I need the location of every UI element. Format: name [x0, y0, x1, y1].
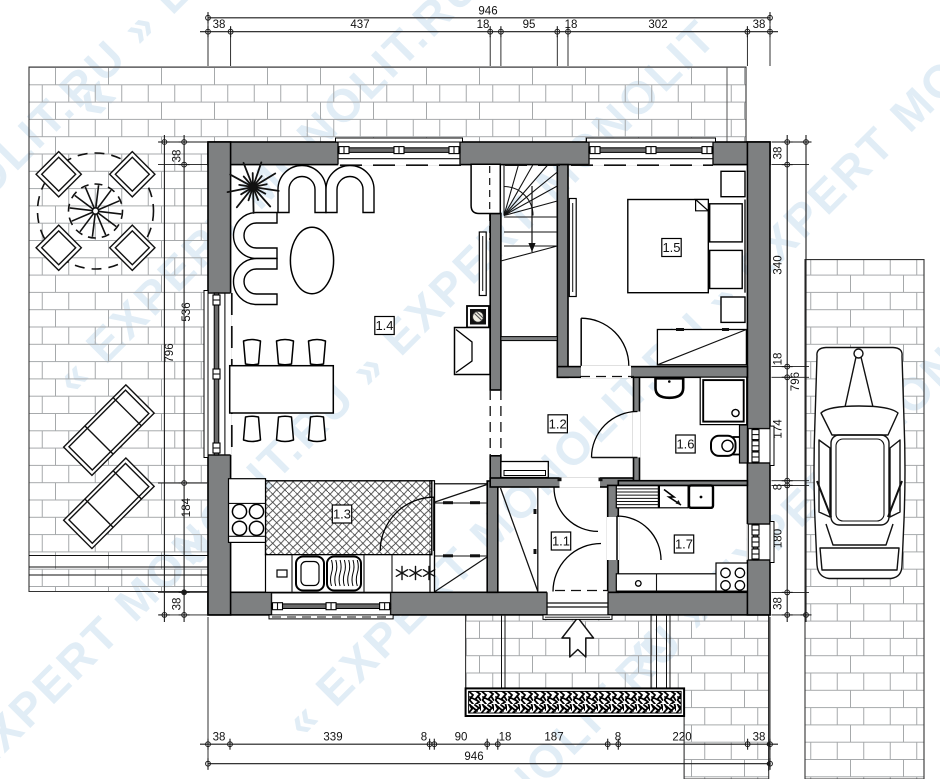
svg-text:38: 38 — [753, 732, 766, 744]
svg-text:38: 38 — [753, 19, 766, 31]
svg-text:18: 18 — [565, 19, 578, 31]
svg-text:796: 796 — [164, 343, 176, 362]
svg-text:1.1: 1.1 — [552, 534, 570, 549]
svg-text:536: 536 — [181, 302, 193, 321]
svg-text:1.6: 1.6 — [676, 437, 694, 452]
svg-text:1.5: 1.5 — [662, 240, 680, 255]
svg-text:38: 38 — [213, 732, 226, 744]
svg-text:946: 946 — [464, 751, 483, 763]
svg-text:38: 38 — [213, 19, 226, 31]
svg-text:946: 946 — [478, 6, 497, 18]
svg-text:184: 184 — [181, 497, 193, 517]
svg-text:18: 18 — [773, 353, 785, 366]
svg-text:302: 302 — [648, 19, 667, 31]
svg-text:8: 8 — [773, 484, 785, 490]
svg-text:90: 90 — [455, 732, 468, 744]
svg-text:1.7: 1.7 — [675, 537, 693, 552]
svg-text:340: 340 — [773, 255, 785, 274]
svg-text:1.4: 1.4 — [375, 318, 393, 333]
svg-text:38: 38 — [773, 597, 785, 610]
svg-text:8: 8 — [615, 732, 621, 744]
svg-text:18: 18 — [477, 19, 490, 31]
svg-text:95: 95 — [523, 19, 536, 31]
svg-text:220: 220 — [672, 732, 691, 744]
svg-text:437: 437 — [350, 19, 369, 31]
svg-text:38: 38 — [773, 147, 785, 160]
svg-text:796: 796 — [790, 372, 802, 391]
svg-text:187: 187 — [544, 732, 563, 744]
svg-text:1.2: 1.2 — [549, 416, 567, 431]
svg-text:339: 339 — [323, 732, 342, 744]
svg-text:8: 8 — [421, 732, 427, 744]
svg-text:38: 38 — [172, 598, 184, 611]
svg-text:38: 38 — [172, 150, 184, 163]
svg-text:1.3: 1.3 — [333, 507, 351, 522]
svg-text:18: 18 — [499, 732, 512, 744]
